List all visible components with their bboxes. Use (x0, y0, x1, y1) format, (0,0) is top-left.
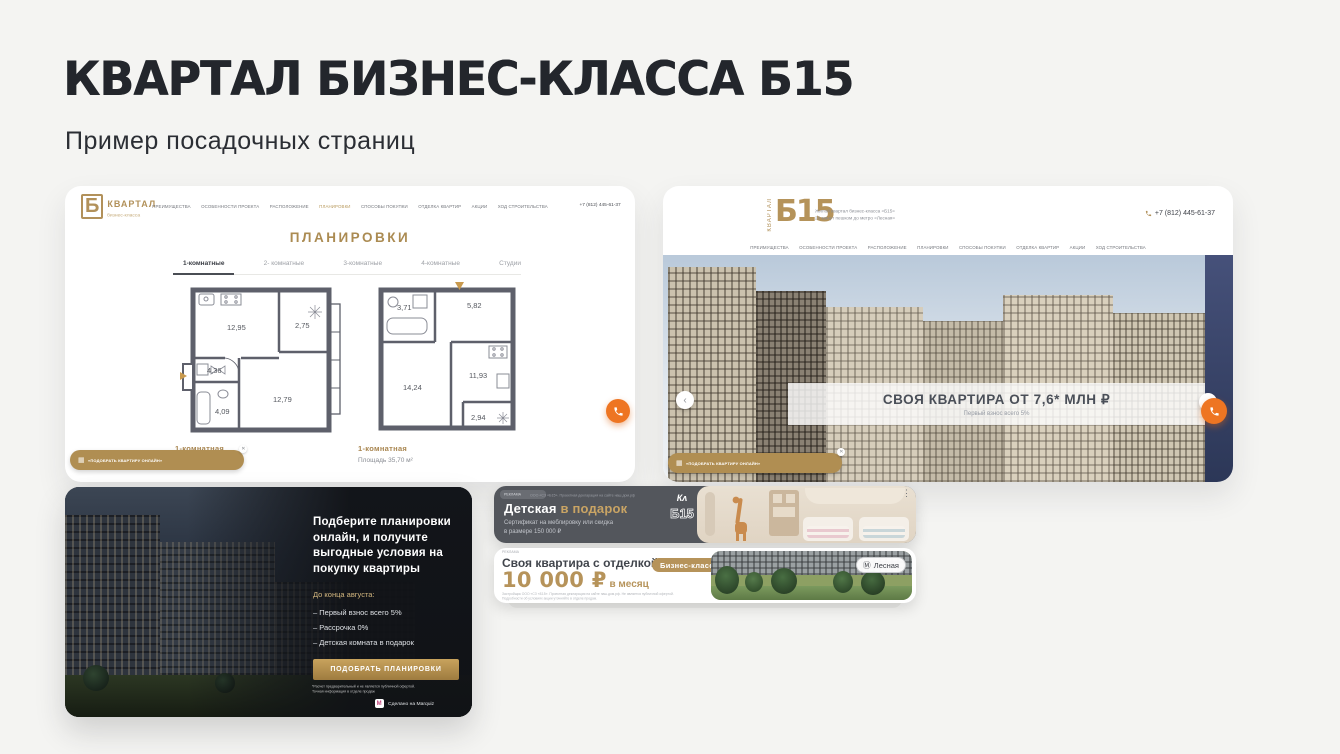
quiz-promo-card: Подберите планировки онлайн, и получите … (65, 487, 472, 717)
nav-item[interactable]: СПОСОБЫ ПОКУПКИ (959, 245, 1006, 250)
nav-item[interactable]: РАСПОЛОЖЕНИЕ (270, 204, 309, 209)
nav-item[interactable]: ПЛАНИРОВКИ (917, 245, 948, 250)
tab-2-room[interactable]: 2- комнатные (264, 260, 305, 267)
banner-title: Детская в подарок (504, 501, 627, 516)
nav-item[interactable]: АКЦИИ (1070, 245, 1086, 250)
close-icon[interactable]: ✕ (239, 445, 247, 453)
pick-floorplans-button[interactable]: ПОДОБРАТЬ ПЛАНИРОВКИ (313, 659, 459, 680)
nav-item[interactable]: РАСПОЛОЖЕНИЕ (868, 245, 907, 250)
ad-legal-note: Застройщик ООО «СЗ «Б15». Проектная декл… (502, 592, 674, 601)
quiz-text-block: Подберите планировки онлайн, и получите … (313, 515, 463, 680)
widget-icon: ▦ (78, 457, 85, 464)
floorplan-1-drawing: 12,95 2,75 4,36 4,09 12,79 (177, 280, 351, 444)
hero-photo-edge (1205, 255, 1233, 482)
quiz-benefit: – Первый взнос всего 5% (313, 605, 463, 620)
courtyard-photo: Ⓜ Лесная (711, 551, 912, 600)
banner-title-accent: в подарок (560, 501, 627, 516)
floorplan-2-drawing: 3,71 5,82 14,24 11,93 2,94 (371, 278, 523, 444)
nav-item[interactable]: ОСОБЕННОСТИ ПРОЕКТА (201, 204, 259, 209)
site-nav: ПРЕИМУЩЕСТВА ОСОБЕННОСТИ ПРОЕКТА РАСПОЛО… (750, 245, 1146, 250)
quiz-heading: Подберите планировки онлайн, и получите … (313, 515, 463, 577)
svg-text:2,75: 2,75 (295, 321, 310, 330)
tree (771, 568, 797, 594)
bed (803, 517, 853, 541)
giraffe-toy (727, 496, 753, 542)
b15-outline-logo: Б15 (670, 506, 694, 521)
shelf-unit (769, 490, 799, 536)
nav-item[interactable]: СПОСОБЫ ПОКУПКИ (361, 204, 408, 209)
banner-logos: Кʌ Б15 (670, 493, 694, 521)
hero-offer-title: СВОЯ КВАРТИРА ОТ 7,6* МЛН ₽ (883, 392, 1110, 408)
partner-logo: Кʌ (670, 493, 694, 503)
logo-tagline: Жилой квартал бизнес-класса «Б15» 20 мин… (815, 208, 895, 222)
quiz-benefits-list: – Первый взнос всего 5% – Рассрочка 0% –… (313, 605, 463, 650)
pick-apartment-online-button[interactable]: ▦ «ПОДОБРАТЬ КВАРТИРУ ОНЛАЙН» ✕ (70, 450, 244, 470)
tree (833, 571, 853, 593)
nav-item[interactable]: ПРЕИМУЩЕСТВА (750, 245, 788, 250)
nav-item[interactable]: ОСОБЕННОСТИ ПРОЕКТА (799, 245, 857, 250)
b15-logo[interactable]: Б КВАРТАЛ бизнес-класса (81, 194, 161, 221)
ad-legal-note: ООО «СЗ «Б15». Проектная декларация на с… (530, 493, 635, 497)
tab-3-room[interactable]: 3-комнатные (343, 260, 382, 267)
building-block (668, 267, 756, 482)
nav-item[interactable]: ХОД СТРОИТЕЛЬСТВА (498, 204, 548, 209)
svg-text:4,09: 4,09 (215, 407, 230, 416)
phone-icon (1145, 210, 1152, 217)
ad-banner-price-offer[interactable]: РЕКЛАМА Своя квартира с отделкой за 10 0… (494, 548, 916, 603)
marquiz-icon: M (375, 699, 384, 708)
nav-item[interactable]: ОТДЕЛКА КВАРТИР (418, 204, 461, 209)
tab-4-room[interactable]: 4-комнатные (421, 260, 460, 267)
banner-price: 10 000 ₽ в месяц (502, 568, 649, 592)
tab-1-room[interactable]: 1-комнатные (183, 260, 224, 267)
ad-banner-nursery-gift[interactable]: РЕКЛАМА ООО «СЗ «Б15». Проектная деклара… (494, 486, 916, 543)
quiz-benefit: – Рассрочка 0% (313, 620, 463, 635)
tree (715, 566, 739, 594)
svg-text:5,82: 5,82 (467, 301, 482, 310)
tree (745, 572, 763, 592)
page-subtitle: Пример посадочных страниц (65, 127, 415, 156)
logo-vertical-text: КВАРТАЛ (767, 198, 773, 232)
widget-icon: ▦ (676, 460, 683, 467)
pick-apartment-online-button[interactable]: ▦ «ПОДОБРАТЬ КВАРТИРУ ОНЛАЙН» ✕ (668, 453, 842, 473)
plan2-area: Площадь 35,70 м² (358, 457, 413, 464)
quiz-disclaimer: *Расчет предварительный и не является пу… (312, 684, 420, 694)
ad-label: РЕКЛАМА (502, 550, 519, 554)
logo-subtitle: бизнес-класса (107, 212, 140, 218)
svg-text:12,79: 12,79 (273, 395, 292, 404)
cloud-decor (805, 488, 905, 504)
metro-icon: Ⓜ (863, 560, 871, 571)
callback-button[interactable] (606, 399, 630, 423)
tab-studio[interactable]: Студии (499, 260, 521, 267)
site-nav: ПРЕИМУЩЕСТВА ОСОБЕННОСТИ ПРОЕКТА РАСПОЛО… (152, 204, 548, 209)
tree (861, 571, 885, 595)
ad-menu-icon[interactable]: ⋮ (902, 489, 911, 498)
bed (859, 517, 909, 541)
carousel-prev-button[interactable]: ‹ (676, 391, 694, 409)
header-phone[interactable]: +7 (812) 445-61-37 (580, 202, 621, 207)
plan2-name: 1-комнатная (358, 444, 407, 453)
callback-button[interactable] (1201, 398, 1227, 424)
quiz-deadline: До конца августа: (313, 590, 463, 599)
landing-screenshot-floorplans: Б КВАРТАЛ бизнес-класса ПРЕИМУЩЕСТВА ОСО… (65, 186, 635, 482)
section-title-floorplans: ПЛАНИРОВКИ (65, 230, 635, 245)
metro-badge: Ⓜ Лесная (856, 557, 906, 573)
svg-text:4,36: 4,36 (207, 366, 222, 375)
svg-text:12,95: 12,95 (227, 323, 246, 332)
nav-item[interactable]: ПРЕИМУЩЕСТВА (152, 204, 190, 209)
banner-subtitle: Сертификат на меблировку или скидка в ра… (504, 519, 613, 537)
hero-photo: СВОЯ КВАРТИРА ОТ 7,6* МЛН ₽ Первый взнос… (663, 255, 1233, 482)
logo-title: КВАРТАЛ (107, 199, 156, 209)
nav-item[interactable]: АКЦИИ (472, 204, 488, 209)
b15-logo-mark: Б (81, 194, 103, 219)
made-on-marquiz[interactable]: M Сделано на Marquiz (375, 699, 462, 708)
phone-icon (1209, 406, 1220, 417)
nav-item[interactable]: ОТДЕЛКА КВАРТИР (1016, 245, 1059, 250)
hero-offer-band: СВОЯ КВАРТИРА ОТ 7,6* МЛН ₽ Первый взнос… (788, 383, 1205, 425)
svg-text:2,94: 2,94 (471, 413, 486, 422)
kids-room-photo: ⋮ (697, 486, 916, 543)
floorplan-tabs: 1-комнатные 2- комнатные 3-комнатные 4-к… (183, 260, 521, 275)
phone-icon (613, 406, 624, 417)
svg-text:14,24: 14,24 (403, 383, 422, 392)
hero-offer-subtitle: Первый взнос всего 5% (964, 411, 1030, 417)
svg-text:11,93: 11,93 (469, 371, 487, 380)
price-suffix: в месяц (607, 579, 649, 590)
landing-screenshot-hero: КВАРТАЛ Б15 Жилой квартал бизнес-класса … (663, 186, 1233, 482)
page-title: КВАРТАЛ БИЗНЕС-КЛАССА Б15 (63, 52, 853, 107)
nav-item-active[interactable]: ПЛАНИРОВКИ (319, 204, 350, 209)
header-phone[interactable]: +7 (812) 445-61-37 (1145, 210, 1215, 217)
nav-item[interactable]: ХОД СТРОИТЕЛЬСТВА (1096, 245, 1146, 250)
svg-text:3,71: 3,71 (397, 303, 412, 312)
wall-panel (705, 492, 715, 536)
quiz-benefit: – Детская комната в подарок (313, 635, 463, 650)
